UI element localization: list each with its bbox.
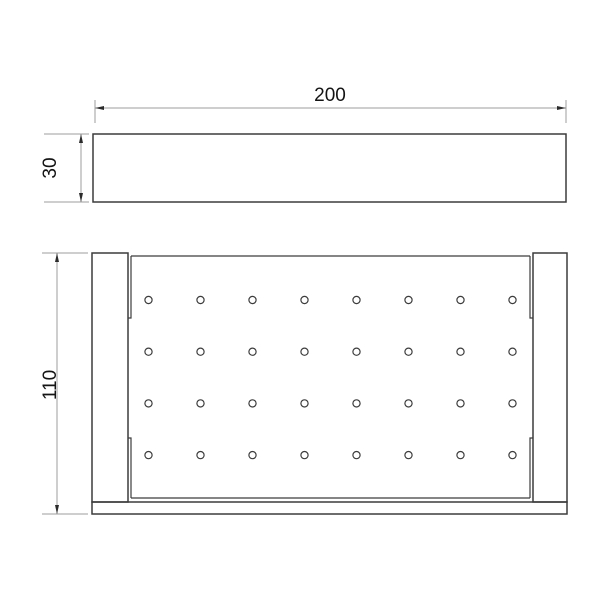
perforation-hole (405, 296, 412, 303)
perforation-hole (509, 296, 516, 303)
top-view (92, 253, 567, 514)
front-view-outline (93, 134, 566, 202)
perforated-plate-outline (128, 256, 533, 498)
perforation-hole (353, 452, 360, 459)
technical-drawing: 200 30 (0, 0, 600, 600)
perforation-hole (457, 296, 464, 303)
perforation-hole (197, 296, 204, 303)
perforation-hole (145, 400, 152, 407)
arrow-up-icon (79, 134, 83, 143)
bottom-rail (92, 502, 567, 514)
perforation-hole (509, 400, 516, 407)
perforation-hole (249, 348, 256, 355)
perforation-hole (457, 400, 464, 407)
dimension-front-height: 30 (40, 134, 89, 202)
perforation-hole (353, 296, 360, 303)
dimension-overall-width: 200 (95, 85, 566, 123)
dim-label-overall-depth: 110 (40, 370, 61, 400)
perforation-hole (145, 296, 152, 303)
arrow-down-icon (79, 193, 83, 202)
front-view (93, 134, 566, 202)
perforation-hole (405, 452, 412, 459)
perforation-hole (457, 348, 464, 355)
perforation-hole (353, 400, 360, 407)
perforation-hole (457, 452, 464, 459)
perforation-hole (249, 452, 256, 459)
perforation-hole (249, 400, 256, 407)
perforation-hole (301, 348, 308, 355)
perforation-hole (509, 452, 516, 459)
dimension-overall-depth: 110 (40, 253, 88, 514)
arrow-right-icon (557, 106, 566, 110)
perforation-hole (301, 296, 308, 303)
perforation-hole (197, 348, 204, 355)
perforation-hole (145, 348, 152, 355)
perforation-holes (145, 296, 516, 458)
left-rail (92, 253, 128, 502)
arrow-left-icon (95, 106, 104, 110)
arrow-up-icon (55, 253, 59, 262)
perforation-hole (405, 400, 412, 407)
perforation-hole (353, 348, 360, 355)
drawing-canvas: 200 30 (0, 0, 600, 600)
perforation-hole (405, 348, 412, 355)
perforation-hole (509, 348, 516, 355)
right-rail (533, 253, 567, 502)
perforation-hole (145, 452, 152, 459)
perforation-hole (249, 296, 256, 303)
dim-label-front-height: 30 (40, 157, 61, 178)
dim-label-overall-width: 200 (314, 85, 346, 106)
perforation-hole (197, 400, 204, 407)
arrow-down-icon (55, 505, 59, 514)
perforation-hole (301, 452, 308, 459)
perforation-hole (197, 452, 204, 459)
perforation-hole (301, 400, 308, 407)
